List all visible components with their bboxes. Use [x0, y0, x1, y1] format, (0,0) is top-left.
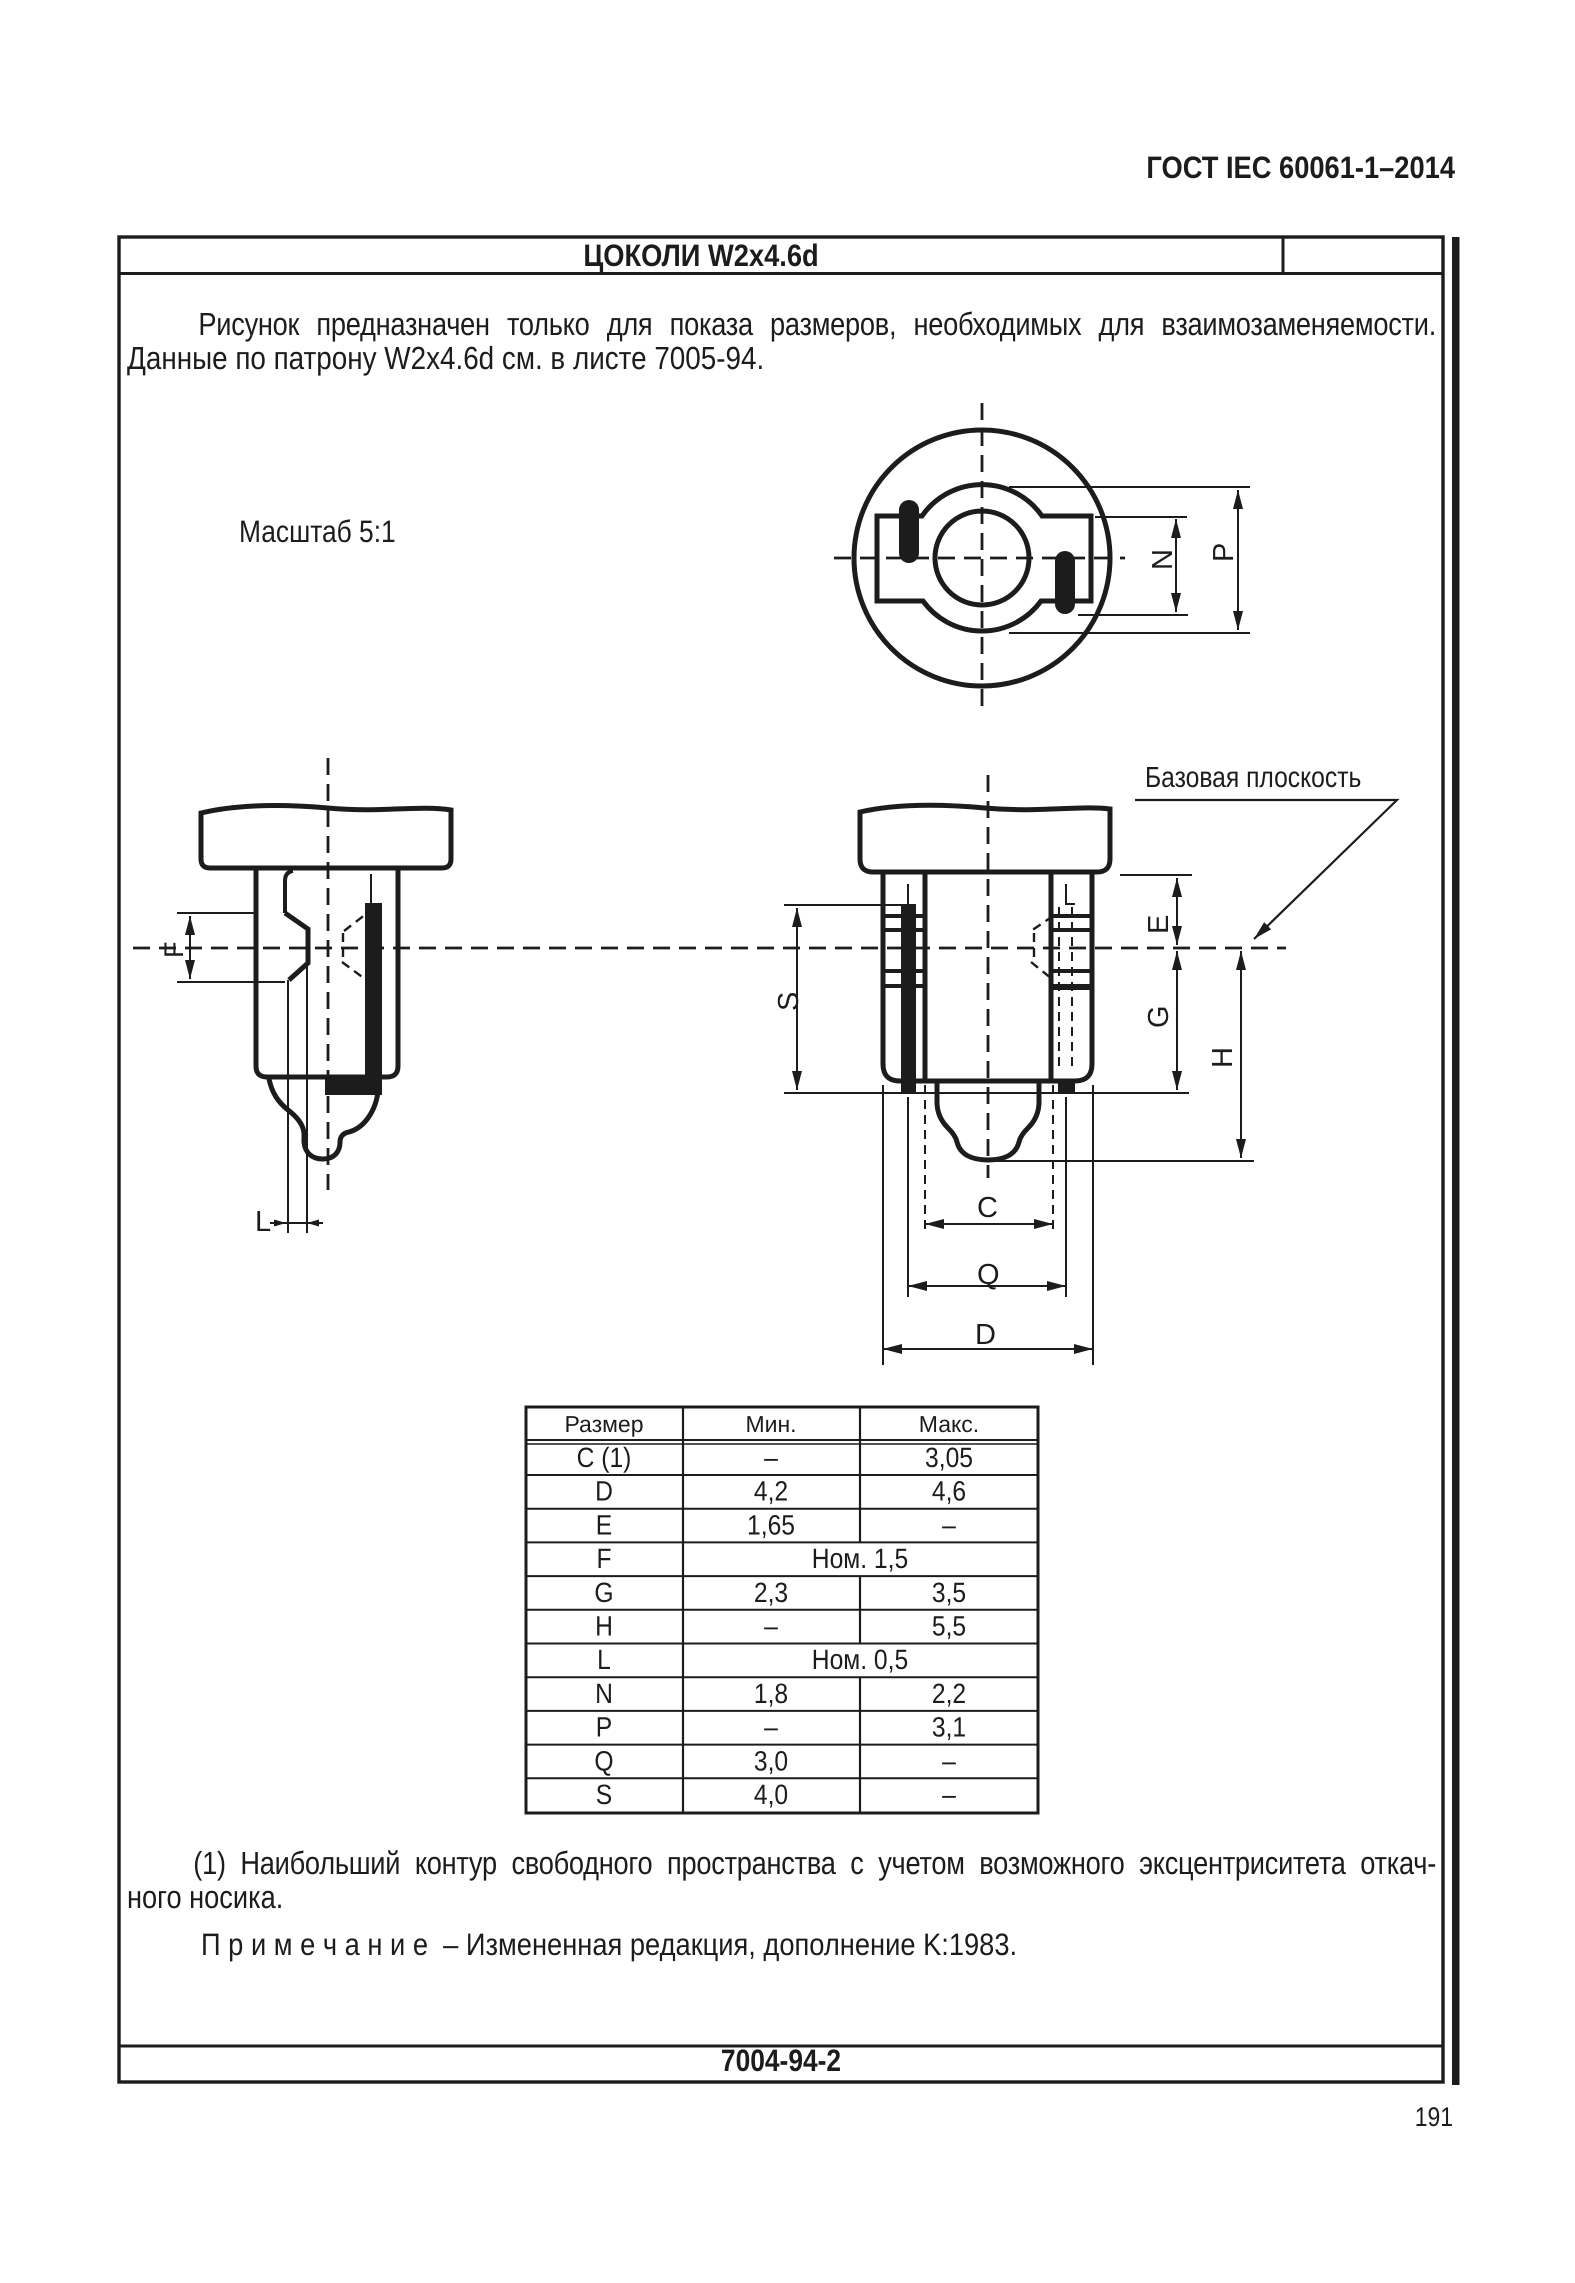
svg-text:L: L	[597, 1644, 611, 1675]
svg-text:D: D	[595, 1476, 613, 1507]
svg-text:4,2: 4,2	[754, 1476, 788, 1507]
svg-text:Ном. 1,5: Ном. 1,5	[812, 1543, 908, 1574]
svg-text:S: S	[773, 992, 805, 1011]
svg-text:–: –	[764, 1611, 778, 1642]
svg-text:Макс.: Макс.	[919, 1411, 979, 1437]
svg-text:N: N	[1147, 549, 1179, 570]
svg-text:H: H	[1207, 1047, 1239, 1068]
svg-text:G: G	[1143, 1005, 1175, 1028]
svg-text:Базовая плоскость: Базовая плоскость	[1145, 762, 1361, 794]
svg-text:F: F	[596, 1543, 611, 1574]
svg-text:Размер: Размер	[564, 1411, 643, 1437]
svg-text:L: L	[255, 1206, 271, 1238]
svg-text:–: –	[764, 1442, 778, 1473]
svg-text:Q: Q	[977, 1259, 1000, 1291]
svg-text:S: S	[596, 1779, 612, 1810]
svg-text:2,3: 2,3	[754, 1577, 788, 1608]
svg-text:–: –	[942, 1745, 956, 1776]
svg-text:2,2: 2,2	[932, 1678, 966, 1709]
svg-text:1,8: 1,8	[754, 1678, 788, 1709]
svg-text:Q: Q	[594, 1745, 613, 1776]
svg-text:5,5: 5,5	[932, 1611, 966, 1642]
svg-text:P: P	[596, 1712, 612, 1743]
svg-text:Мин.: Мин.	[745, 1411, 796, 1437]
svg-text:H: H	[595, 1611, 613, 1642]
svg-text:N: N	[595, 1678, 613, 1709]
svg-text:3,5: 3,5	[932, 1577, 966, 1608]
svg-text:–: –	[942, 1509, 956, 1540]
svg-text:G: G	[594, 1577, 613, 1608]
svg-text:3,0: 3,0	[754, 1745, 788, 1776]
svg-text:E: E	[1143, 915, 1175, 934]
svg-text:1,65: 1,65	[747, 1509, 795, 1540]
svg-text:P: P	[1208, 543, 1240, 562]
svg-text:4,0: 4,0	[754, 1779, 788, 1810]
svg-text:–: –	[942, 1779, 956, 1810]
svg-text:–: –	[764, 1712, 778, 1743]
svg-text:D: D	[975, 1319, 996, 1351]
svg-text:Ном. 0,5: Ном. 0,5	[812, 1644, 908, 1675]
svg-text:3,1: 3,1	[932, 1712, 966, 1743]
svg-text:C (1): C (1)	[577, 1442, 632, 1473]
svg-text:3,05: 3,05	[925, 1442, 973, 1473]
svg-text:E: E	[596, 1509, 612, 1540]
svg-text:C: C	[977, 1192, 998, 1224]
svg-text:4,6: 4,6	[932, 1476, 966, 1507]
svg-text:F: F	[159, 942, 189, 959]
